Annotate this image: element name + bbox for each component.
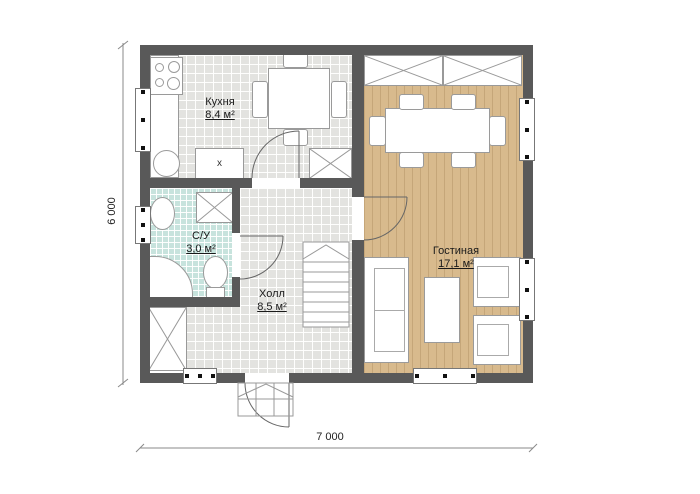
kitchen-chair <box>283 129 308 146</box>
living-door-opening <box>352 197 364 240</box>
dining-chair <box>369 116 386 146</box>
dining-chair <box>451 94 476 110</box>
hall-window-south <box>183 368 217 384</box>
living-wardrobe <box>364 55 443 86</box>
living-window-east-lower <box>519 258 535 321</box>
kitchen-sink <box>153 150 180 177</box>
room-name: Кухня <box>188 96 252 109</box>
living-wardrobe <box>443 55 522 86</box>
kitchen-chair <box>252 81 268 118</box>
armchair-seat <box>477 324 509 356</box>
kitchen-cabinet: x <box>195 148 244 179</box>
dining-chair <box>399 94 424 110</box>
kitchen-table <box>268 68 330 129</box>
room-area: 3,0 м² <box>178 243 224 256</box>
wall-right <box>523 45 533 383</box>
wall-top <box>140 45 533 55</box>
room-label-kitchen: Кухня 8,4 м² <box>188 96 252 122</box>
kitchen-door-opening <box>252 178 300 188</box>
room-label-bathroom: С/У 3,0 м² <box>178 230 224 256</box>
bathroom-sink <box>150 197 175 230</box>
kitchen-window <box>135 88 151 152</box>
toilet-bowl <box>203 256 228 289</box>
living-window-south <box>413 368 477 384</box>
dimension-width: 7 000 <box>290 431 370 443</box>
room-name: С/У <box>178 230 224 243</box>
bathroom-door-opening <box>232 233 240 277</box>
dining-chair <box>399 152 424 168</box>
dining-chair <box>451 152 476 168</box>
burner-icon <box>155 78 164 87</box>
wall-bathroom-south <box>140 297 240 307</box>
bathroom-window <box>135 206 151 244</box>
dining-chair <box>489 116 506 146</box>
room-name: Гостиная <box>420 245 492 258</box>
cabinet-mark: x <box>217 158 222 169</box>
entrance-opening <box>245 373 289 383</box>
burner-icon <box>167 77 180 90</box>
dimension-height: 6 000 <box>106 181 118 241</box>
stove <box>150 57 183 95</box>
room-name: Холл <box>244 288 300 301</box>
hall-closet <box>148 307 187 371</box>
floor-plan: x <box>0 0 700 494</box>
armchair <box>473 315 521 365</box>
sofa <box>364 257 409 363</box>
dining-table <box>385 108 490 153</box>
wall-kitchen-south <box>150 178 352 188</box>
bathroom-closet <box>196 192 233 223</box>
living-window-east-upper <box>519 98 535 161</box>
sofa-seat <box>374 268 405 352</box>
room-label-hall: Холл 8,5 м² <box>244 288 300 314</box>
room-area: 8,5 м² <box>244 301 300 314</box>
kitchen-chair <box>331 81 347 118</box>
porch <box>238 383 293 416</box>
burner-icon <box>155 63 164 72</box>
room-label-living: Гостиная 17,1 м² <box>420 245 492 271</box>
room-area: 17,1 м² <box>420 258 492 271</box>
coffee-table <box>424 277 460 343</box>
kitchen-closet <box>309 148 352 179</box>
room-area: 8,4 м² <box>188 109 252 122</box>
burner-icon <box>168 61 180 73</box>
